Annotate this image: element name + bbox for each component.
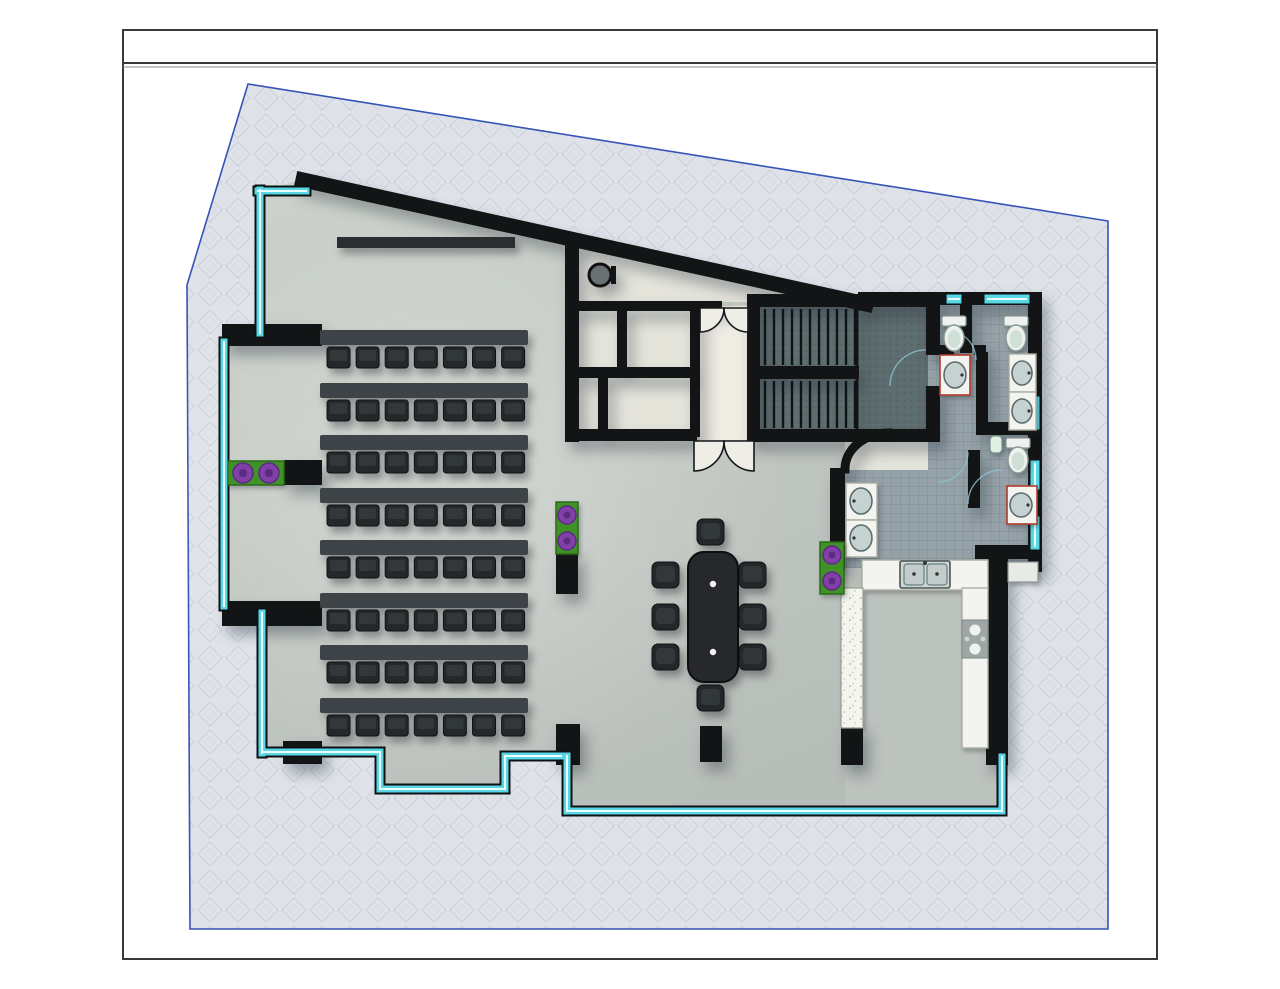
desk-row xyxy=(320,645,528,660)
classroom-chair-seat xyxy=(388,718,405,729)
desk-row xyxy=(320,330,528,345)
table-grommet xyxy=(710,581,716,587)
title-strip xyxy=(124,31,1156,62)
classroom-chair-seat xyxy=(476,613,493,624)
wall-stub xyxy=(284,460,322,485)
conference-chair-seat xyxy=(701,689,720,705)
classroom-chair-seat xyxy=(330,665,347,676)
classroom-chair-seat xyxy=(446,508,463,519)
classroom-chair-seat xyxy=(388,665,405,676)
desk-row xyxy=(320,540,528,555)
classroom-chair-seat xyxy=(330,403,347,414)
toilet xyxy=(942,316,966,351)
wall-segment xyxy=(598,378,608,432)
classroom-chair-seat xyxy=(446,403,463,414)
counter-niche xyxy=(1008,562,1038,582)
conference-chair-seat xyxy=(743,648,762,664)
column xyxy=(556,552,578,594)
toilet xyxy=(1004,316,1028,351)
classroom-chair-seat xyxy=(330,350,347,361)
classroom-chair-seat xyxy=(330,613,347,624)
sink xyxy=(1009,354,1036,392)
planter xyxy=(820,542,844,594)
classroom-chair-seat xyxy=(359,350,376,361)
conference-chair-seat xyxy=(656,566,675,582)
sink xyxy=(940,355,970,395)
bar-counter xyxy=(841,588,863,728)
urinal xyxy=(990,436,1002,453)
wall-segment xyxy=(617,311,627,371)
sink xyxy=(1007,486,1037,524)
classroom-chair-seat xyxy=(417,718,434,729)
faucet xyxy=(923,561,927,565)
conference-chair-seat xyxy=(743,608,762,624)
classroom-chair-seat xyxy=(359,665,376,676)
classroom-chair-seat xyxy=(388,455,405,466)
classroom-chair-seat xyxy=(505,560,522,571)
stair-wall-bottom xyxy=(747,429,938,442)
classroom-chair-seat xyxy=(417,665,434,676)
classroom-chair-seat xyxy=(476,350,493,361)
stair-stringer xyxy=(755,366,859,379)
wall-segment xyxy=(565,367,691,378)
conference-chair-seat xyxy=(701,523,720,539)
desk-row xyxy=(320,383,528,398)
floor-plan-page xyxy=(0,0,1280,989)
wall-segment xyxy=(565,429,697,441)
classroom-chair-seat xyxy=(476,560,493,571)
classroom-chair-seat xyxy=(505,665,522,676)
classroom-chair-seat xyxy=(505,403,522,414)
conference-chair-seat xyxy=(743,566,762,582)
door-jamb xyxy=(611,266,616,284)
column xyxy=(700,726,722,762)
classroom-chair-seat xyxy=(476,665,493,676)
classroom-chair-seat xyxy=(359,560,376,571)
classroom-chair-seat xyxy=(446,665,463,676)
classroom-chair-seat xyxy=(359,455,376,466)
classroom-chair-seat xyxy=(476,455,493,466)
classroom-chair-seat xyxy=(330,455,347,466)
classroom-chair-seat xyxy=(446,718,463,729)
kitchen-counter-side xyxy=(962,588,988,748)
sink xyxy=(846,483,877,520)
wall-segment xyxy=(565,236,579,442)
classroom-chair-seat xyxy=(446,350,463,361)
classroom-chair-seat xyxy=(505,613,522,624)
classroom-chair-seat xyxy=(388,350,405,361)
classroom-chair-seat xyxy=(359,718,376,729)
classroom-chair-seat xyxy=(505,508,522,519)
sink xyxy=(846,520,877,557)
classroom-chair-seat xyxy=(446,455,463,466)
classroom-chair-seat xyxy=(359,613,376,624)
classroom-chair-seat xyxy=(417,613,434,624)
planter xyxy=(228,461,284,485)
kitchen-sink xyxy=(900,561,950,588)
wall-stub xyxy=(222,601,322,626)
whiteboard xyxy=(337,237,515,248)
classroom-chair-seat xyxy=(417,403,434,414)
classroom-chair-seat xyxy=(388,403,405,414)
round-column xyxy=(589,264,611,286)
classroom-chair-seat xyxy=(505,718,522,729)
desk-row xyxy=(320,593,528,608)
planter xyxy=(556,502,578,554)
classroom-chair-seat xyxy=(417,350,434,361)
classroom-chair-seat xyxy=(476,718,493,729)
conference-chair-seat xyxy=(656,608,675,624)
classroom-chair-seat xyxy=(330,508,347,519)
classroom-chair-seat xyxy=(417,508,434,519)
vestibule-wall-left xyxy=(690,303,700,437)
classroom-chair-seat xyxy=(505,455,522,466)
classroom-chair-seat xyxy=(417,455,434,466)
column xyxy=(841,724,863,765)
classroom-chair-seat xyxy=(388,560,405,571)
restroom-wall xyxy=(926,386,940,442)
desk-row xyxy=(320,488,528,503)
classroom-chair-seat xyxy=(359,508,376,519)
classroom-chair-seat xyxy=(476,403,493,414)
desk-row xyxy=(320,435,528,450)
classroom-chair-seat xyxy=(388,613,405,624)
sink xyxy=(1009,392,1036,430)
classroom-chair-seat xyxy=(417,560,434,571)
wall-stub xyxy=(222,324,322,346)
floor-plan-drawing xyxy=(0,0,1280,989)
classroom-chair-seat xyxy=(446,613,463,624)
classroom-chair-seat xyxy=(330,718,347,729)
cooktop xyxy=(962,620,988,658)
table-grommet xyxy=(710,649,716,655)
toilet xyxy=(1006,438,1030,473)
wall-segment xyxy=(976,352,988,434)
classroom-chair-seat xyxy=(388,508,405,519)
classroom-chair-seat xyxy=(330,560,347,571)
classroom-chair-seat xyxy=(359,403,376,414)
conference-chair-seat xyxy=(656,648,675,664)
classroom-chair-seat xyxy=(446,560,463,571)
classroom-chair-seat xyxy=(505,350,522,361)
desk-row xyxy=(320,698,528,713)
conference-table xyxy=(688,552,738,682)
classroom-chair-seat xyxy=(476,508,493,519)
